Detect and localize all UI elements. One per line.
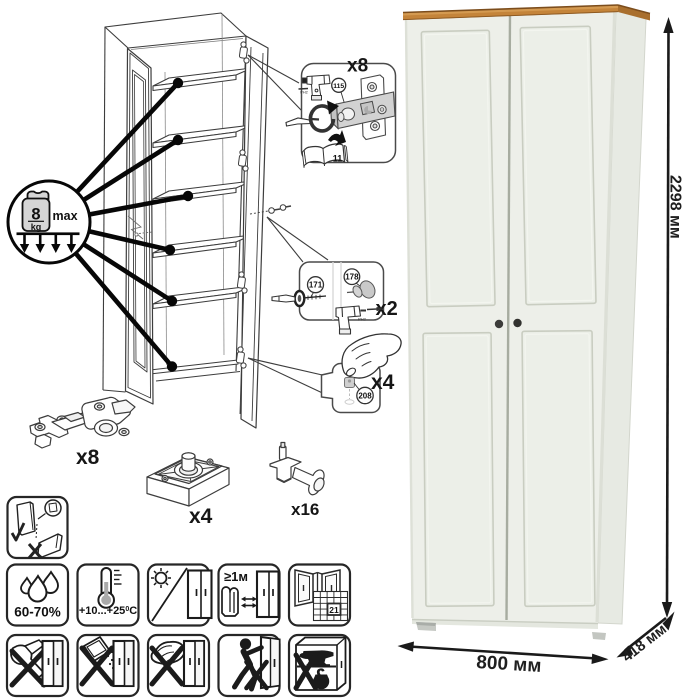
svg-text:x8: x8	[347, 56, 368, 77]
svg-text:+10...+250C: +10...+250C	[79, 605, 137, 617]
svg-text:x4: x4	[371, 371, 395, 394]
svg-text:171: 171	[309, 281, 323, 290]
svg-text:x16: x16	[291, 500, 319, 519]
svg-text:x8: x8	[76, 446, 100, 469]
svg-text:800 мм: 800 мм	[476, 652, 542, 677]
svg-text:60-70%: 60-70%	[14, 605, 61, 620]
svg-text:115: 115	[333, 83, 344, 90]
svg-text:x4: x4	[189, 505, 213, 528]
svg-text:PH2: PH2	[358, 317, 367, 322]
svg-text:≥1м: ≥1м	[224, 569, 248, 584]
svg-text:21: 21	[329, 605, 339, 615]
svg-text:178: 178	[345, 273, 359, 282]
svg-text:2298 мм: 2298 мм	[667, 175, 684, 239]
svg-text:kg: kg	[31, 222, 42, 232]
svg-text:11: 11	[333, 154, 343, 164]
svg-text:PH2: PH2	[300, 91, 307, 95]
svg-text:max: max	[53, 209, 78, 223]
svg-text:208: 208	[358, 392, 372, 401]
